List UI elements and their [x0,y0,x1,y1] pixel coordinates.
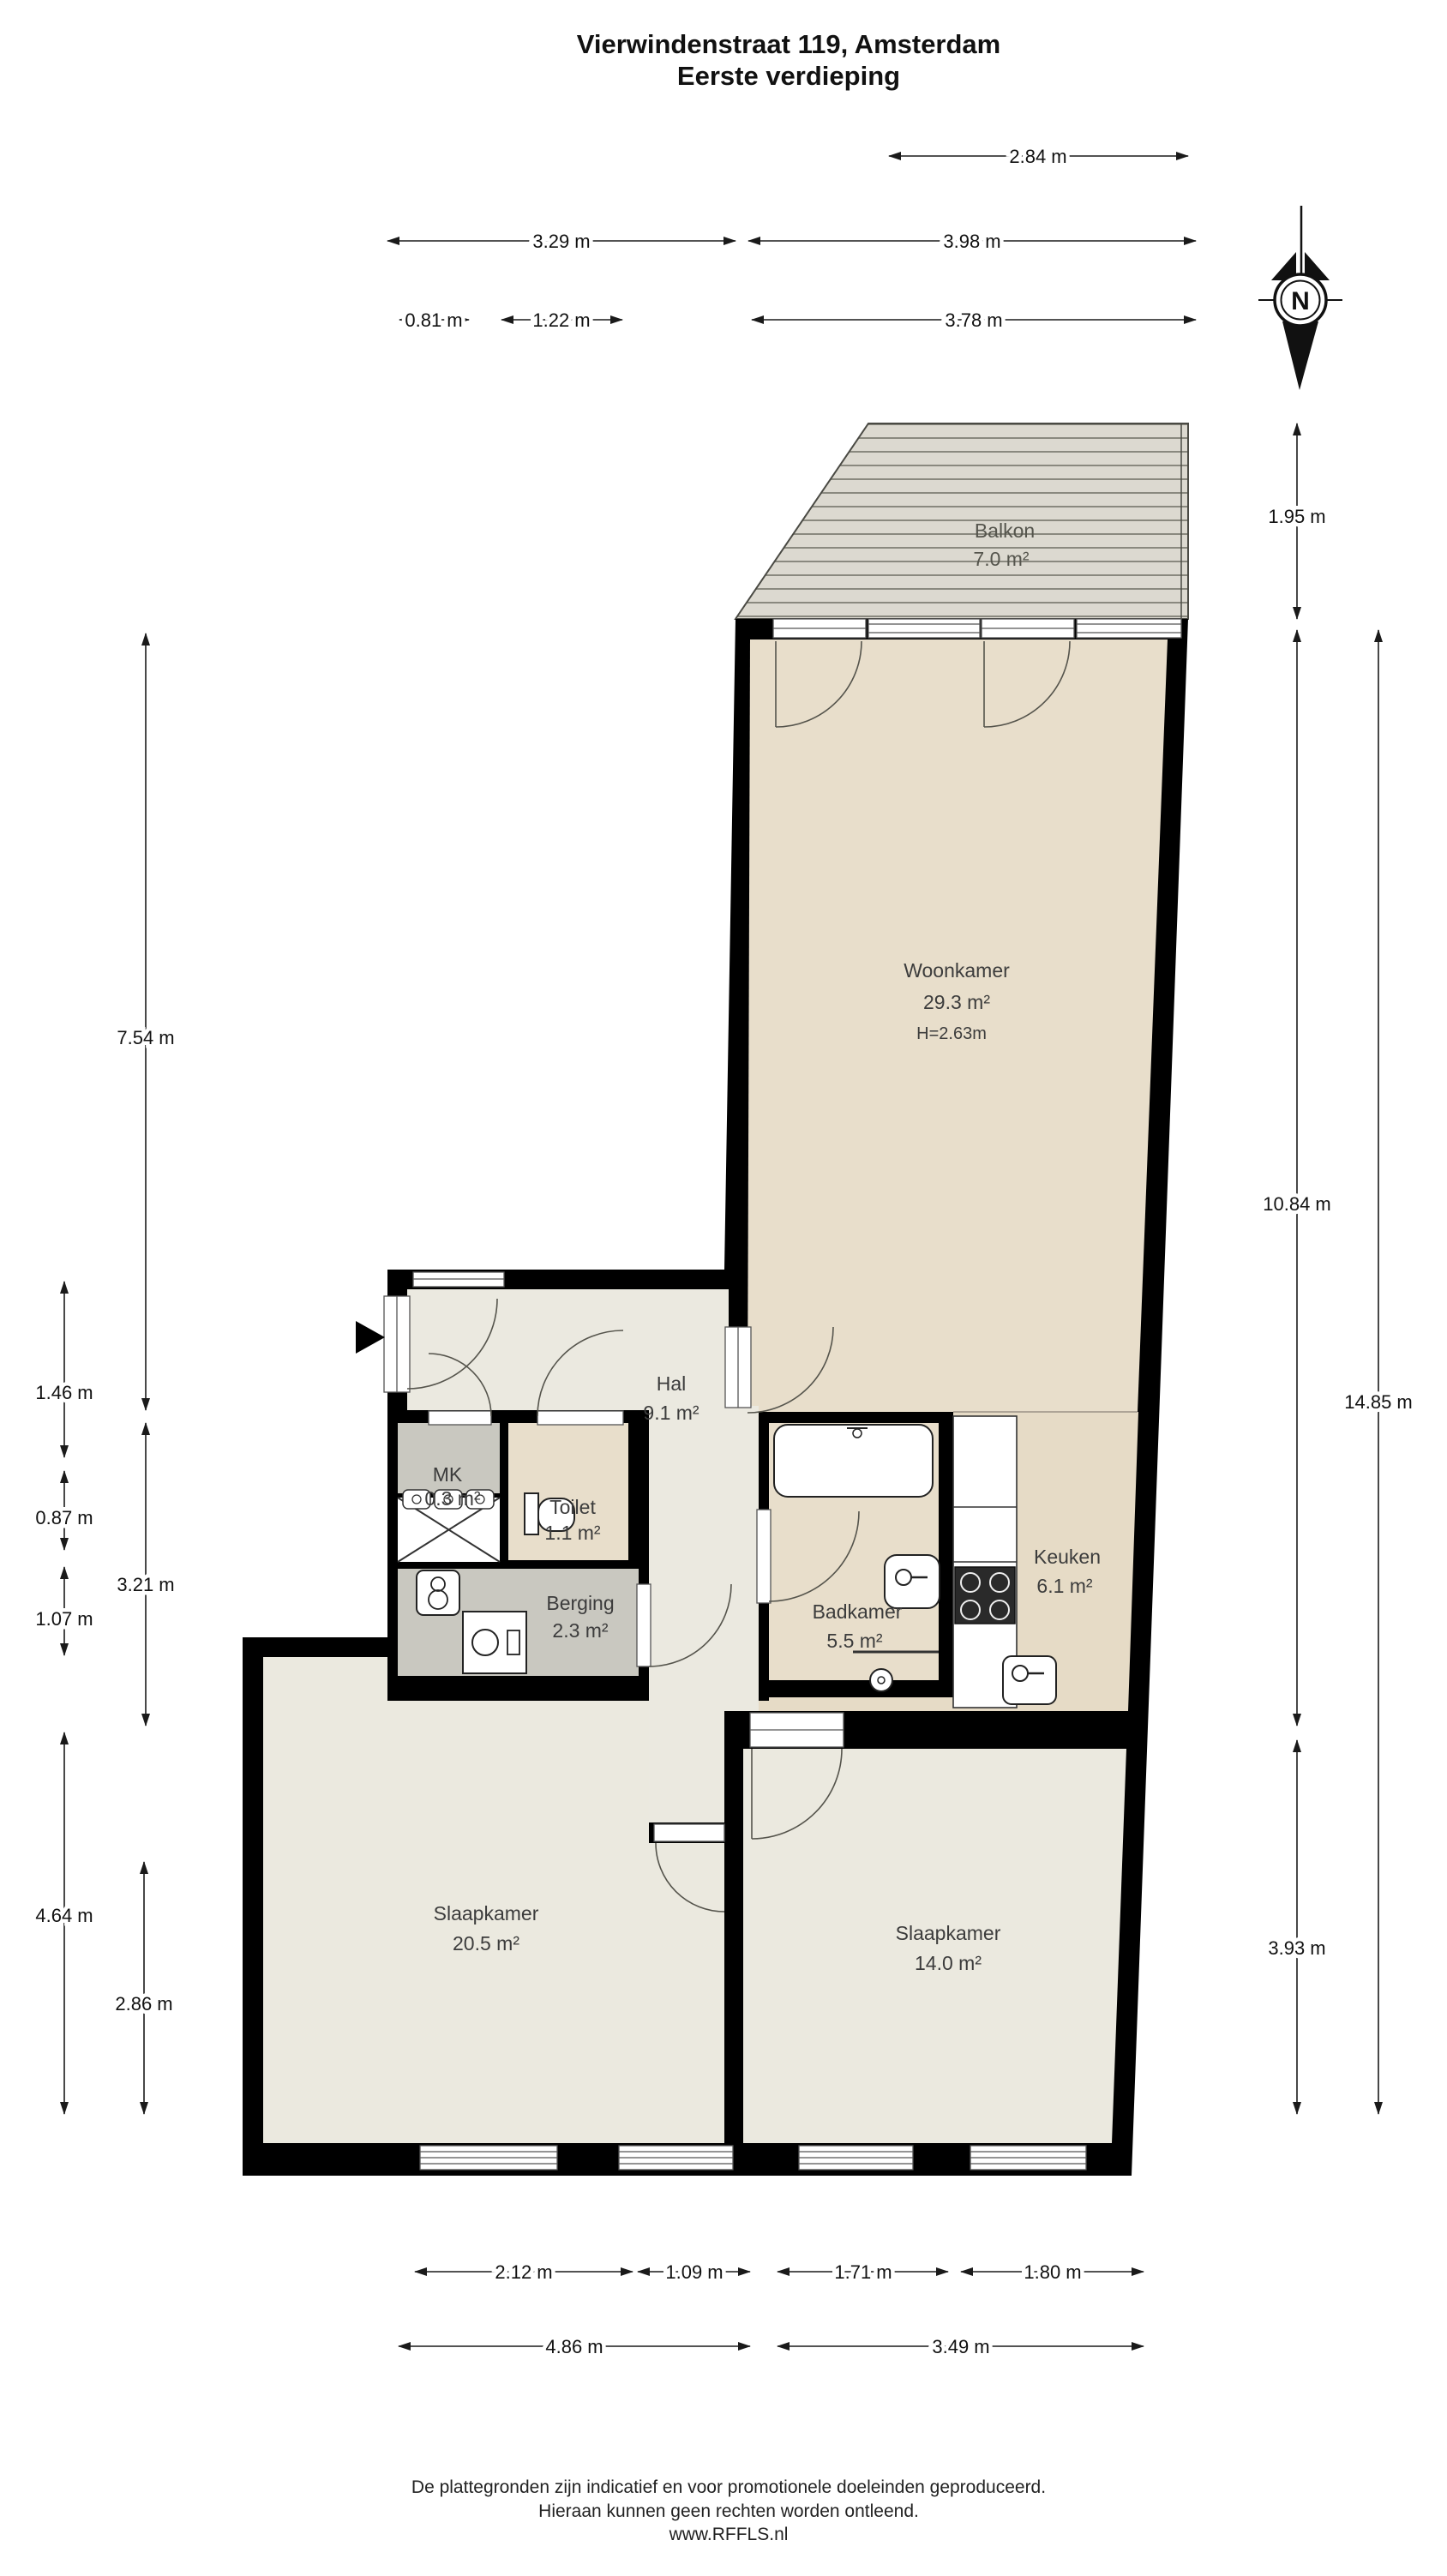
floor-slaapkamer-rechts [743,1749,1126,2143]
room-area-slaapkamer-links: 20.5 m² [453,1932,519,1955]
room-label-woonkamer: Woonkamer [904,959,1010,982]
room-area-mk: 0.3 m² [424,1487,481,1510]
dim-right-0: 1.95 m [1268,506,1325,527]
dim-left-5: 4.64 m [35,1905,93,1926]
dim-right-1: 10.84 m [1263,1193,1331,1215]
dim-right-2: 14.85 m [1344,1391,1413,1413]
dim-left-1: 1.46 m [35,1382,93,1403]
page-title: Vierwindenstraat 119, Amsterdam Eerste v… [577,29,1001,91]
bathtub-icon [774,1425,933,1497]
room-area-slaapkamer-rechts: 14.0 m² [915,1952,982,1974]
room-label-badkamer: Badkamer [813,1600,903,1623]
compass-north-label: N [1291,287,1310,315]
room-label-balkon: Balkon [975,519,1035,542]
room-label-keuken: Keuken [1034,1546,1101,1568]
kitchen-sink-icon [1003,1656,1056,1704]
floorplan-page: Vierwindenstraat 119, Amsterdam Eerste v… [0,0,1447,2572]
dim-left-6: 2.86 m [115,1993,172,2015]
dim-right-3: 3.93 m [1268,1937,1325,1959]
room-label-hal: Hal [657,1372,687,1395]
title-line1: Vierwindenstraat 119, Amsterdam [577,29,1001,59]
dim-bottom-5: 3.49 m [932,2336,989,2357]
dim-top-5: 3.78 m [945,309,1002,331]
dim-top-0: 2.84 m [1009,146,1066,167]
footer-line3: www.RFFLS.nl [669,2525,789,2544]
room-ceiling-woonkamer: H=2.63m [916,1024,987,1043]
balcony-window-center [868,619,980,638]
room-label-toilet: Toilet [549,1496,596,1518]
dim-bottom-1: 1.09 m [665,2261,723,2283]
room-area-badkamer: 5.5 m² [826,1630,883,1652]
room-area-keuken: 6.1 m² [1036,1575,1093,1597]
room-area-berging: 2.3 m² [552,1619,609,1642]
footer-line1: De plattegronden zijn indicatief en voor… [411,2477,1046,2497]
title-line2: Eerste verdieping [677,61,900,91]
room-area-balkon: 7.0 m² [973,548,1030,570]
footer-disclaimer: De plattegronden zijn indicatief en voor… [411,2477,1046,2544]
facade-window-3 [799,2146,913,2170]
balcony-window-right [1077,619,1181,638]
room-area-hal: 9.1 m² [643,1402,699,1424]
room-area-woonkamer: 29.3 m² [923,991,990,1013]
hal-top-window [413,1272,504,1287]
washbasin-icon [870,1669,892,1691]
facade-window-4 [970,2146,1086,2170]
facade-window-2 [619,2146,733,2170]
stove-icon [955,1567,1015,1624]
dim-top-2: 3.98 m [943,231,1000,252]
washing-machine-icon [463,1612,526,1673]
dim-bottom-3: 1.80 m [1024,2261,1081,2283]
facade-window-1 [420,2146,557,2170]
dim-bottom-2: 1.71 m [834,2261,892,2283]
dim-left-4: 3.21 m [117,1574,174,1595]
footer-line2: Hieraan kunnen geen rechten worden ontle… [538,2501,919,2521]
dim-top-3: 0.81 m [405,309,462,331]
room-label-slaapkamer-rechts: Slaapkamer [896,1922,1001,1944]
dim-top-1: 3.29 m [532,231,590,252]
room-balkon: Balkon 7.0 m² [736,423,1188,619]
entrance-arrow-icon [356,1321,385,1354]
room-label-berging: Berging [546,1592,614,1614]
floorplan-canvas: Vierwindenstraat 119, Amsterdam Eerste v… [0,0,1447,2572]
room-label-slaapkamer-links: Slaapkamer [434,1902,539,1924]
dim-top-4: 1.22 m [532,309,590,331]
dim-bottom-0: 2.12 m [495,2261,552,2283]
room-area-toilet: 1.1 m² [544,1522,601,1544]
room-label-mk: MK [433,1463,463,1486]
dim-left-2: 0.87 m [35,1507,93,1528]
boiler-icon [417,1570,459,1615]
dim-bottom-4: 4.86 m [545,2336,603,2357]
dim-left-0: 7.54 m [117,1027,174,1048]
compass-icon: N [1258,206,1342,390]
dim-left-3: 1.07 m [35,1608,93,1630]
